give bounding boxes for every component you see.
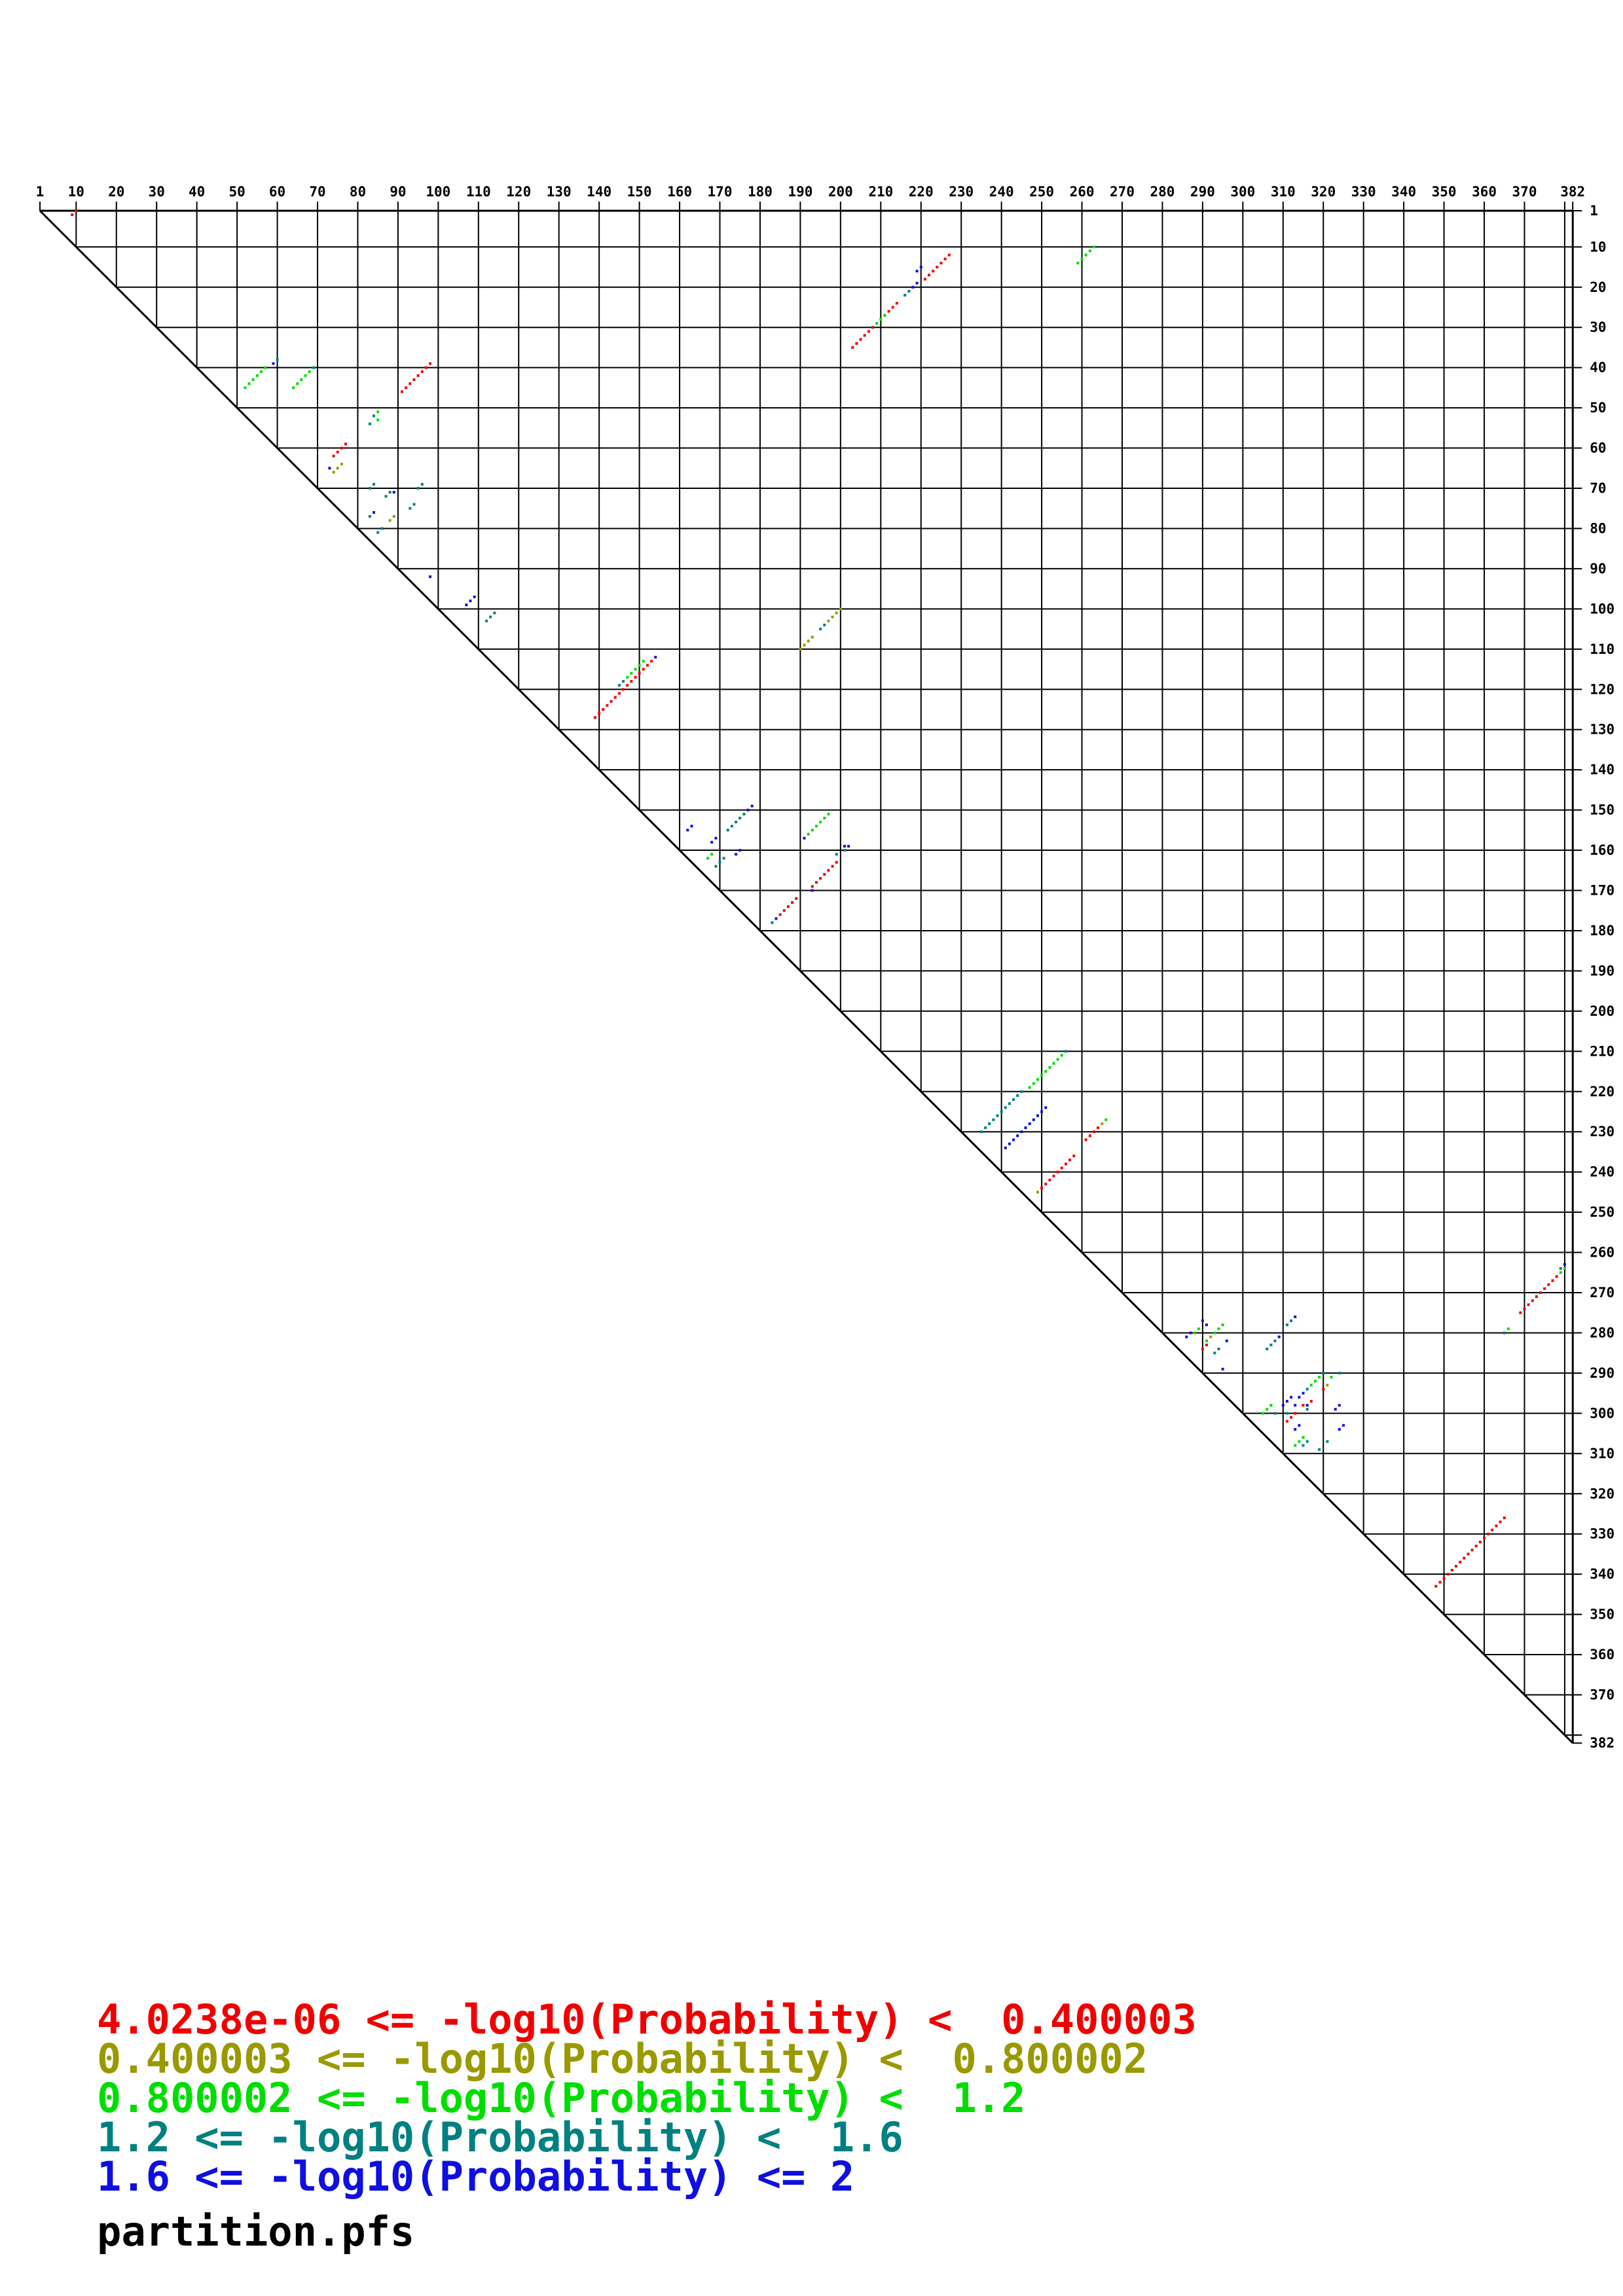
svg-text:140: 140	[587, 184, 611, 200]
svg-text:80: 80	[1590, 520, 1606, 536]
svg-text:110: 110	[1590, 641, 1614, 657]
svg-text:382: 382	[1590, 1735, 1614, 1751]
top-axis-labels: 1102030405060708090100110120130140150160…	[36, 184, 1586, 200]
svg-text:50: 50	[228, 184, 245, 200]
svg-text:60: 60	[269, 184, 285, 200]
svg-text:280: 280	[1590, 1325, 1614, 1340]
svg-text:270: 270	[1590, 1285, 1614, 1300]
legend-line-blue: 1.6 <= -log10(Probability) <= 2	[97, 2157, 1197, 2197]
svg-text:1: 1	[1590, 203, 1598, 219]
svg-text:210: 210	[868, 184, 893, 200]
legend-line-green: 0.800002 <= -log10(Probability) < 1.2	[97, 2079, 1197, 2118]
svg-text:300: 300	[1230, 184, 1255, 200]
base-pair-dots	[71, 209, 1566, 1588]
svg-text:340: 340	[1391, 184, 1416, 200]
svg-text:10: 10	[1590, 239, 1606, 255]
svg-text:100: 100	[426, 184, 450, 200]
svg-text:360: 360	[1472, 184, 1497, 200]
svg-text:300: 300	[1590, 1405, 1614, 1421]
dot-plot-page: 1102030405060708090100110120130140150160…	[0, 0, 1623, 2296]
svg-text:290: 290	[1190, 184, 1215, 200]
svg-text:260: 260	[1590, 1245, 1614, 1261]
svg-text:150: 150	[1590, 802, 1614, 818]
svg-text:260: 260	[1070, 184, 1095, 200]
svg-text:130: 130	[1590, 722, 1614, 738]
svg-text:270: 270	[1110, 184, 1135, 200]
svg-text:370: 370	[1590, 1687, 1614, 1703]
svg-text:90: 90	[390, 184, 406, 200]
svg-text:190: 190	[788, 184, 812, 200]
svg-text:130: 130	[547, 184, 572, 200]
svg-text:100: 100	[1590, 601, 1614, 617]
svg-text:370: 370	[1512, 184, 1537, 200]
svg-text:1: 1	[36, 184, 45, 200]
svg-text:30: 30	[149, 184, 165, 200]
svg-text:360: 360	[1590, 1647, 1614, 1662]
probability-legend: 4.0238e-06 <= -log10(Probability) < 0.40…	[97, 2000, 1197, 2251]
svg-text:180: 180	[1590, 923, 1614, 939]
svg-text:330: 330	[1351, 184, 1376, 200]
svg-text:40: 40	[1590, 360, 1606, 376]
svg-text:240: 240	[989, 184, 1014, 200]
legend-line-olive: 0.400003 <= -log10(Probability) < 0.8000…	[97, 2039, 1197, 2079]
svg-text:90: 90	[1590, 561, 1606, 577]
svg-text:10: 10	[68, 184, 84, 200]
svg-text:240: 240	[1590, 1164, 1614, 1180]
svg-text:340: 340	[1590, 1566, 1614, 1582]
svg-text:80: 80	[350, 184, 366, 200]
svg-text:140: 140	[1590, 762, 1614, 778]
plot-border	[40, 211, 1573, 1743]
svg-text:290: 290	[1590, 1365, 1614, 1381]
svg-text:190: 190	[1590, 963, 1614, 978]
grid-lines	[76, 211, 1573, 1735]
svg-text:120: 120	[506, 184, 531, 200]
svg-text:50: 50	[1590, 400, 1606, 416]
probability-dot-plot: 1102030405060708090100110120130140150160…	[0, 0, 1623, 1964]
svg-text:230: 230	[949, 184, 974, 200]
svg-text:280: 280	[1150, 184, 1175, 200]
svg-text:170: 170	[708, 184, 733, 200]
svg-text:250: 250	[1590, 1204, 1614, 1220]
svg-text:310: 310	[1590, 1446, 1614, 1462]
svg-text:160: 160	[667, 184, 692, 200]
svg-text:330: 330	[1590, 1526, 1614, 1542]
svg-text:40: 40	[189, 184, 205, 200]
svg-text:250: 250	[1029, 184, 1054, 200]
legend-line-teal: 1.2 <= -log10(Probability) < 1.6	[97, 2118, 1197, 2157]
right-axis-labels: 1102030405060708090100110120130140150160…	[1590, 203, 1614, 1751]
svg-text:30: 30	[1590, 319, 1606, 335]
svg-text:210: 210	[1590, 1043, 1614, 1059]
svg-text:20: 20	[1590, 279, 1606, 295]
svg-text:220: 220	[909, 184, 934, 200]
svg-text:70: 70	[309, 184, 325, 200]
svg-text:160: 160	[1590, 842, 1614, 858]
svg-text:120: 120	[1590, 681, 1614, 697]
svg-text:320: 320	[1590, 1486, 1614, 1501]
source-filename: partition.pfs	[97, 2212, 1197, 2251]
svg-text:382: 382	[1560, 184, 1585, 200]
svg-text:320: 320	[1311, 184, 1336, 200]
svg-text:180: 180	[748, 184, 773, 200]
svg-text:170: 170	[1590, 883, 1614, 899]
svg-text:230: 230	[1590, 1124, 1614, 1139]
svg-text:150: 150	[627, 184, 652, 200]
svg-text:200: 200	[1590, 1003, 1614, 1019]
svg-text:220: 220	[1590, 1084, 1614, 1100]
svg-text:70: 70	[1590, 480, 1606, 496]
axis-ticks	[40, 202, 1582, 1743]
svg-text:310: 310	[1271, 184, 1296, 200]
svg-text:350: 350	[1590, 1607, 1614, 1623]
svg-text:350: 350	[1432, 184, 1457, 200]
svg-text:60: 60	[1590, 440, 1606, 456]
svg-text:200: 200	[828, 184, 853, 200]
svg-text:20: 20	[108, 184, 124, 200]
legend-line-red: 4.0238e-06 <= -log10(Probability) < 0.40…	[97, 2000, 1197, 2039]
svg-text:110: 110	[466, 184, 491, 200]
